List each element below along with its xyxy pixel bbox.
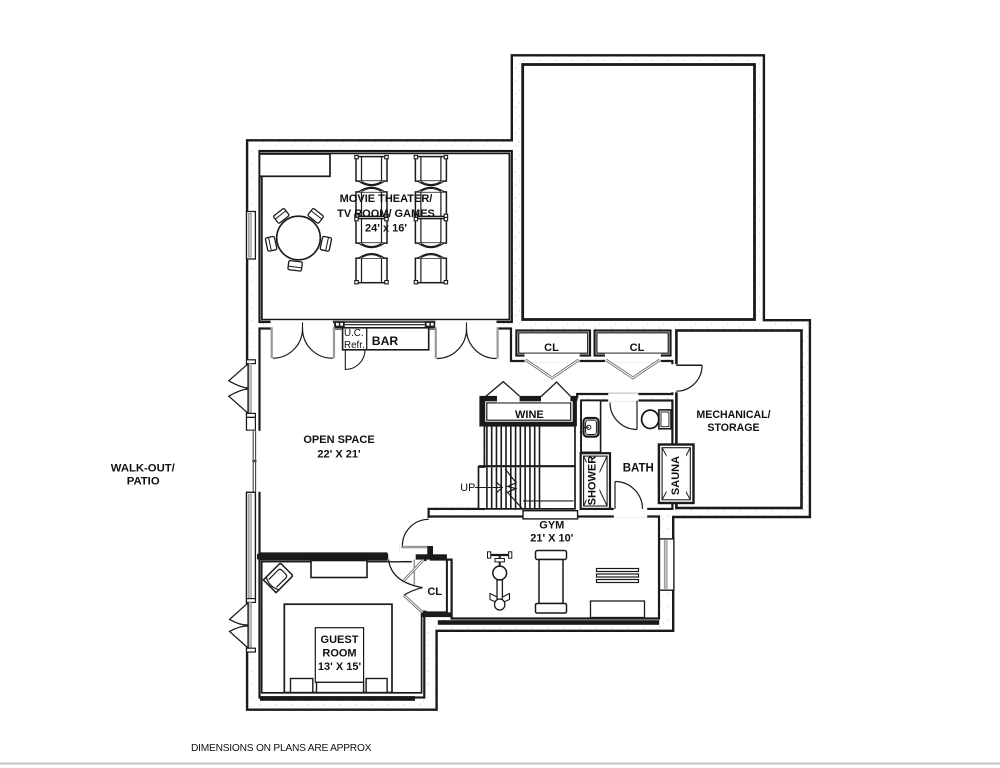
svg-text:WINE: WINE — [515, 409, 544, 421]
svg-text:CL: CL — [427, 586, 442, 598]
svg-text:22' X 21': 22' X 21' — [317, 449, 361, 461]
svg-text:STORAGE: STORAGE — [707, 422, 759, 434]
svg-text:MECHANICAL/: MECHANICAL/ — [696, 409, 770, 421]
svg-text:SAUNA: SAUNA — [670, 456, 682, 495]
svg-text:ROOM: ROOM — [322, 648, 356, 660]
svg-text:DIMENSIONS ON PLANS ARE APPROX: DIMENSIONS ON PLANS ARE APPROX — [191, 743, 372, 754]
svg-text:Refr.: Refr. — [344, 340, 365, 351]
svg-text:U.C.: U.C. — [344, 328, 364, 339]
svg-text:24' x 16': 24' x 16' — [365, 223, 407, 235]
svg-text:UP: UP — [460, 482, 475, 494]
svg-text:GUEST: GUEST — [321, 634, 359, 646]
svg-text:CL: CL — [544, 342, 559, 354]
svg-text:SHOWER: SHOWER — [587, 456, 599, 506]
svg-text:OPEN SPACE: OPEN SPACE — [303, 434, 374, 446]
svg-text:21' X 10': 21' X 10' — [530, 533, 574, 545]
svg-text:13' X 15': 13' X 15' — [318, 661, 362, 673]
svg-text:CL: CL — [630, 342, 645, 354]
svg-text:TV ROOM/ GAMES: TV ROOM/ GAMES — [337, 208, 435, 220]
svg-text:GYM: GYM — [539, 520, 564, 532]
svg-text:WALK-OUT/: WALK-OUT/ — [111, 462, 176, 474]
svg-text:MOVIE THEATER/: MOVIE THEATER/ — [340, 193, 433, 205]
svg-text:PATIO: PATIO — [127, 476, 160, 488]
svg-text:BATH: BATH — [623, 462, 654, 474]
svg-text:BAR: BAR — [372, 334, 399, 348]
